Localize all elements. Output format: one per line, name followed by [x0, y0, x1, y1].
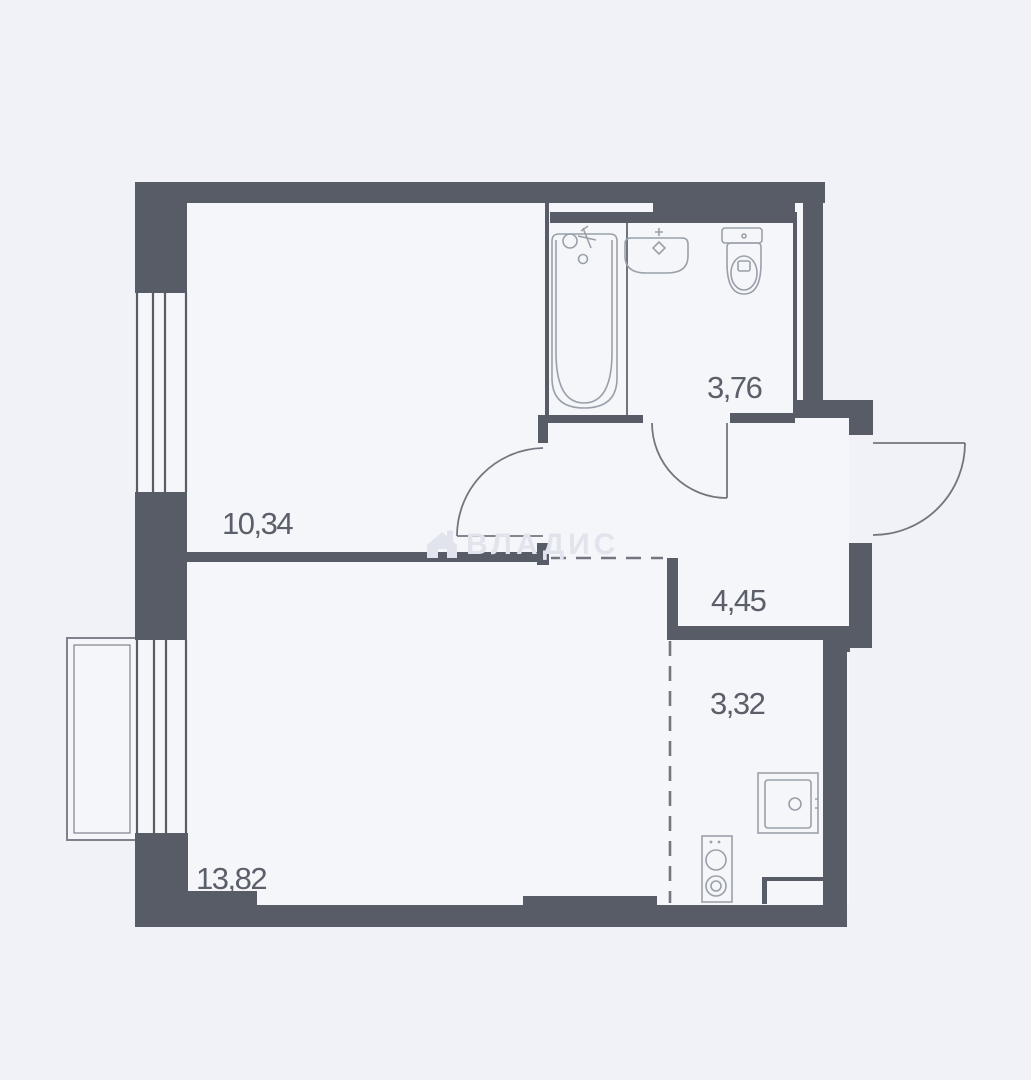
wall-bath-top-thick [653, 203, 795, 212]
room-label-10-34: 10,34 [222, 506, 293, 541]
wall-bottom-pilaster-mid [523, 896, 657, 907]
room-label-3-76: 3,76 [707, 370, 762, 405]
wall-right-lower [823, 640, 847, 927]
floorplan-page: 10,34 3,76 4,45 3,32 13,82 ВЛАДИС [0, 0, 1031, 1080]
door-swing [873, 443, 965, 535]
counter-left-edge [762, 877, 767, 904]
entrance-door-arc [873, 443, 965, 535]
room-label-4-45: 4,45 [711, 583, 766, 618]
floorplan-drawing: 10,34 3,76 4,45 3,32 13,82 ВЛАДИС [0, 0, 1031, 1080]
wall-kitchen-corner [823, 628, 850, 652]
wall-bath-bottom-right [730, 413, 795, 423]
wall-bath-left-line [545, 203, 549, 417]
window-top-left [135, 293, 188, 492]
stove-knob [710, 841, 713, 844]
window-glass [135, 640, 188, 833]
wall-left-mid [135, 492, 187, 640]
wall-bath-bottom-left [543, 415, 643, 423]
wall-bath-top [550, 212, 795, 223]
window-glass [135, 293, 188, 492]
stove-knob [718, 841, 721, 844]
balcony-outline [67, 638, 137, 840]
room-label-3-32: 3,32 [710, 686, 765, 721]
floor-bottom [187, 415, 849, 905]
counter-top-edge [762, 877, 823, 881]
wall-left-upper [135, 182, 187, 293]
room-label-13-82: 13,82 [196, 861, 266, 896]
balcony [67, 638, 137, 840]
wall-hall-stub [667, 558, 678, 632]
wall-kitchen-top [667, 626, 850, 640]
wall-bottom [135, 905, 847, 927]
window-bottom-left [135, 640, 188, 833]
wall-right-upper [803, 182, 823, 402]
wall-entrance-pillar [849, 543, 872, 648]
wall-entrance-step [849, 418, 873, 435]
wall-door-stub [538, 415, 548, 443]
wall-bath-right-line [793, 212, 797, 417]
watermark-text: ВЛАДИС [466, 528, 619, 561]
wall-top [135, 182, 825, 203]
wall-entrance-stub [795, 400, 873, 418]
